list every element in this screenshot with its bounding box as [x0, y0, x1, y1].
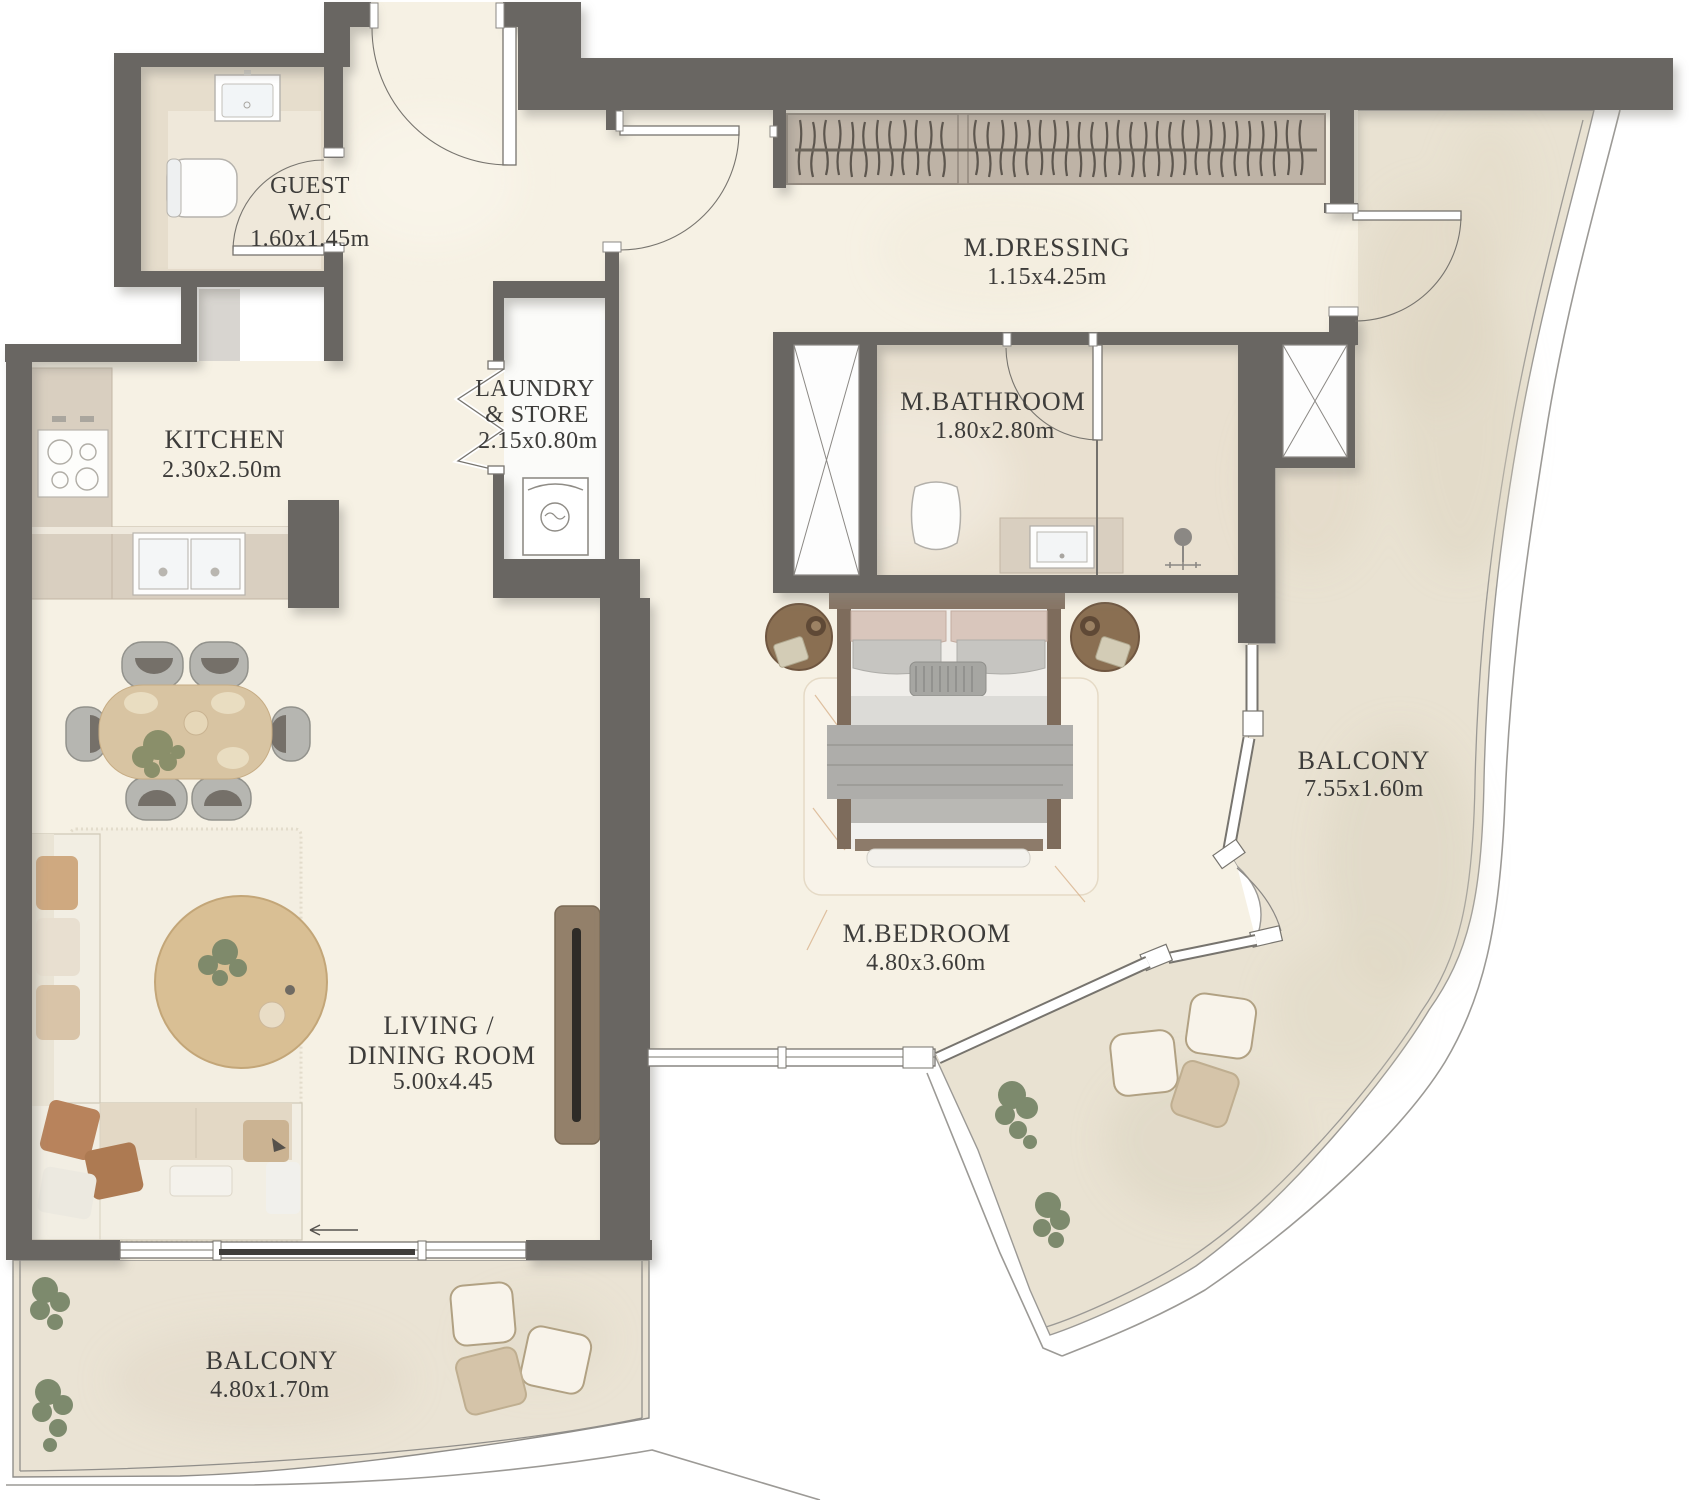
svg-text:M.DRESSING: M.DRESSING [964, 233, 1131, 262]
svg-text:7.55x1.60m: 7.55x1.60m [1304, 776, 1424, 802]
svg-text:DINING ROOM: DINING ROOM [348, 1041, 536, 1070]
svg-text:4.80x1.70m: 4.80x1.70m [210, 1377, 330, 1403]
svg-text:BALCONY: BALCONY [1298, 746, 1431, 775]
svg-text:KITCHEN: KITCHEN [164, 425, 285, 454]
svg-text:W.C: W.C [288, 200, 332, 226]
svg-text:BALCONY: BALCONY [206, 1346, 339, 1375]
svg-text:1.60x1.45m: 1.60x1.45m [250, 226, 370, 252]
svg-text:5.00x4.45: 5.00x4.45 [393, 1069, 494, 1095]
svg-text:LAUNDRY: LAUNDRY [475, 376, 595, 402]
svg-text:4.80x3.60m: 4.80x3.60m [866, 950, 986, 976]
svg-text:& STORE: & STORE [485, 402, 589, 428]
svg-text:1.80x2.80m: 1.80x2.80m [935, 418, 1055, 444]
svg-text:1.15x4.25m: 1.15x4.25m [987, 264, 1107, 290]
svg-text:M.BEDROOM: M.BEDROOM [843, 919, 1012, 948]
svg-text:GUEST: GUEST [270, 173, 350, 199]
svg-text:2.15x0.80m: 2.15x0.80m [478, 428, 598, 454]
svg-text:2.30x2.50m: 2.30x2.50m [162, 457, 282, 483]
svg-text:M.BATHROOM: M.BATHROOM [900, 387, 1086, 416]
svg-text:LIVING /: LIVING / [383, 1011, 494, 1040]
